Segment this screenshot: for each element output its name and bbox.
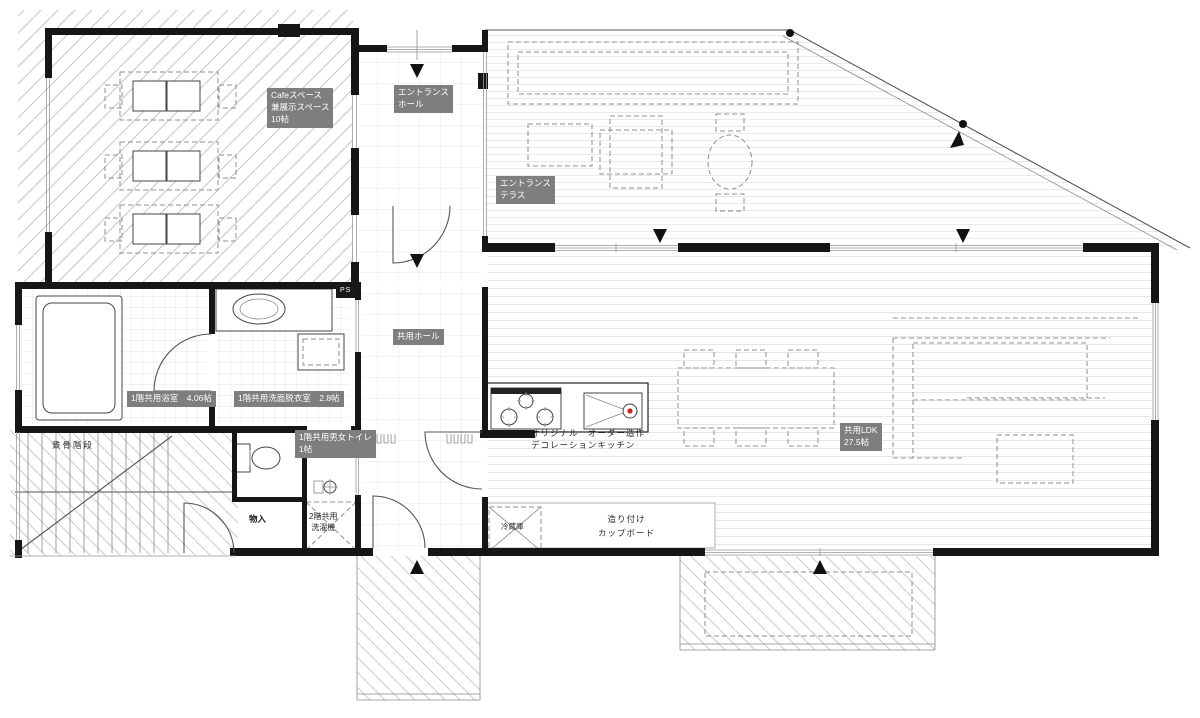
deck-edge-dot: [959, 120, 967, 128]
label-washer-space: 2階共用 洗濯機: [309, 511, 337, 533]
bathtub-icon: [36, 296, 122, 420]
kitchen-counter: [486, 383, 648, 432]
porch-b: [680, 556, 935, 650]
label-steel-stairs: 鉄骨階段: [52, 440, 94, 452]
label-entrance-hall: エントランス ホール: [394, 85, 453, 113]
label-bathroom: 1階共用浴室 4.06帖: [127, 391, 216, 407]
floor-plan-drawing: [0, 0, 1200, 718]
cafe-room-floor: [18, 10, 353, 286]
sink-icon: [584, 393, 642, 429]
label-washroom: 1階共用洗面脱衣室 2.8帖: [234, 391, 344, 407]
label-toilet: 1階共用男女トイレ 1帖: [295, 430, 376, 458]
label-ldk: 共用LDK 27.5帖: [840, 423, 882, 451]
terrace-deck: [485, 29, 1190, 250]
stove-icon: [491, 388, 561, 429]
label-ps-shaft: PS: [337, 285, 354, 297]
label-refrigerator: 冷蔵庫: [501, 522, 524, 533]
sink-drain-accent: [627, 408, 632, 413]
deck-corner-dot: [786, 29, 794, 37]
wash-basin-icon: [216, 289, 332, 331]
label-storage: 物入: [249, 514, 266, 526]
label-entrance-terrace: エントランス テラス: [496, 176, 555, 204]
label-kitchen: オリジナル オーダー造作 デコレーションキッチン: [531, 428, 645, 452]
porch-a: [357, 556, 480, 700]
floor-plan-page: Cafeスペース 兼展示スペース 10帖 エントランス ホール エントランス テ…: [0, 0, 1200, 718]
common-hall-floor: [361, 289, 482, 548]
toilet-icon: [236, 444, 280, 472]
label-cafe-space: Cafeスペース 兼展示スペース 10帖: [267, 88, 333, 128]
label-cupboard: 造り付け カップボード: [598, 512, 655, 541]
washing-machine-icon: [298, 334, 344, 370]
hand-wash-icon: [314, 479, 338, 495]
label-common-hall: 共用ホール: [393, 329, 444, 345]
